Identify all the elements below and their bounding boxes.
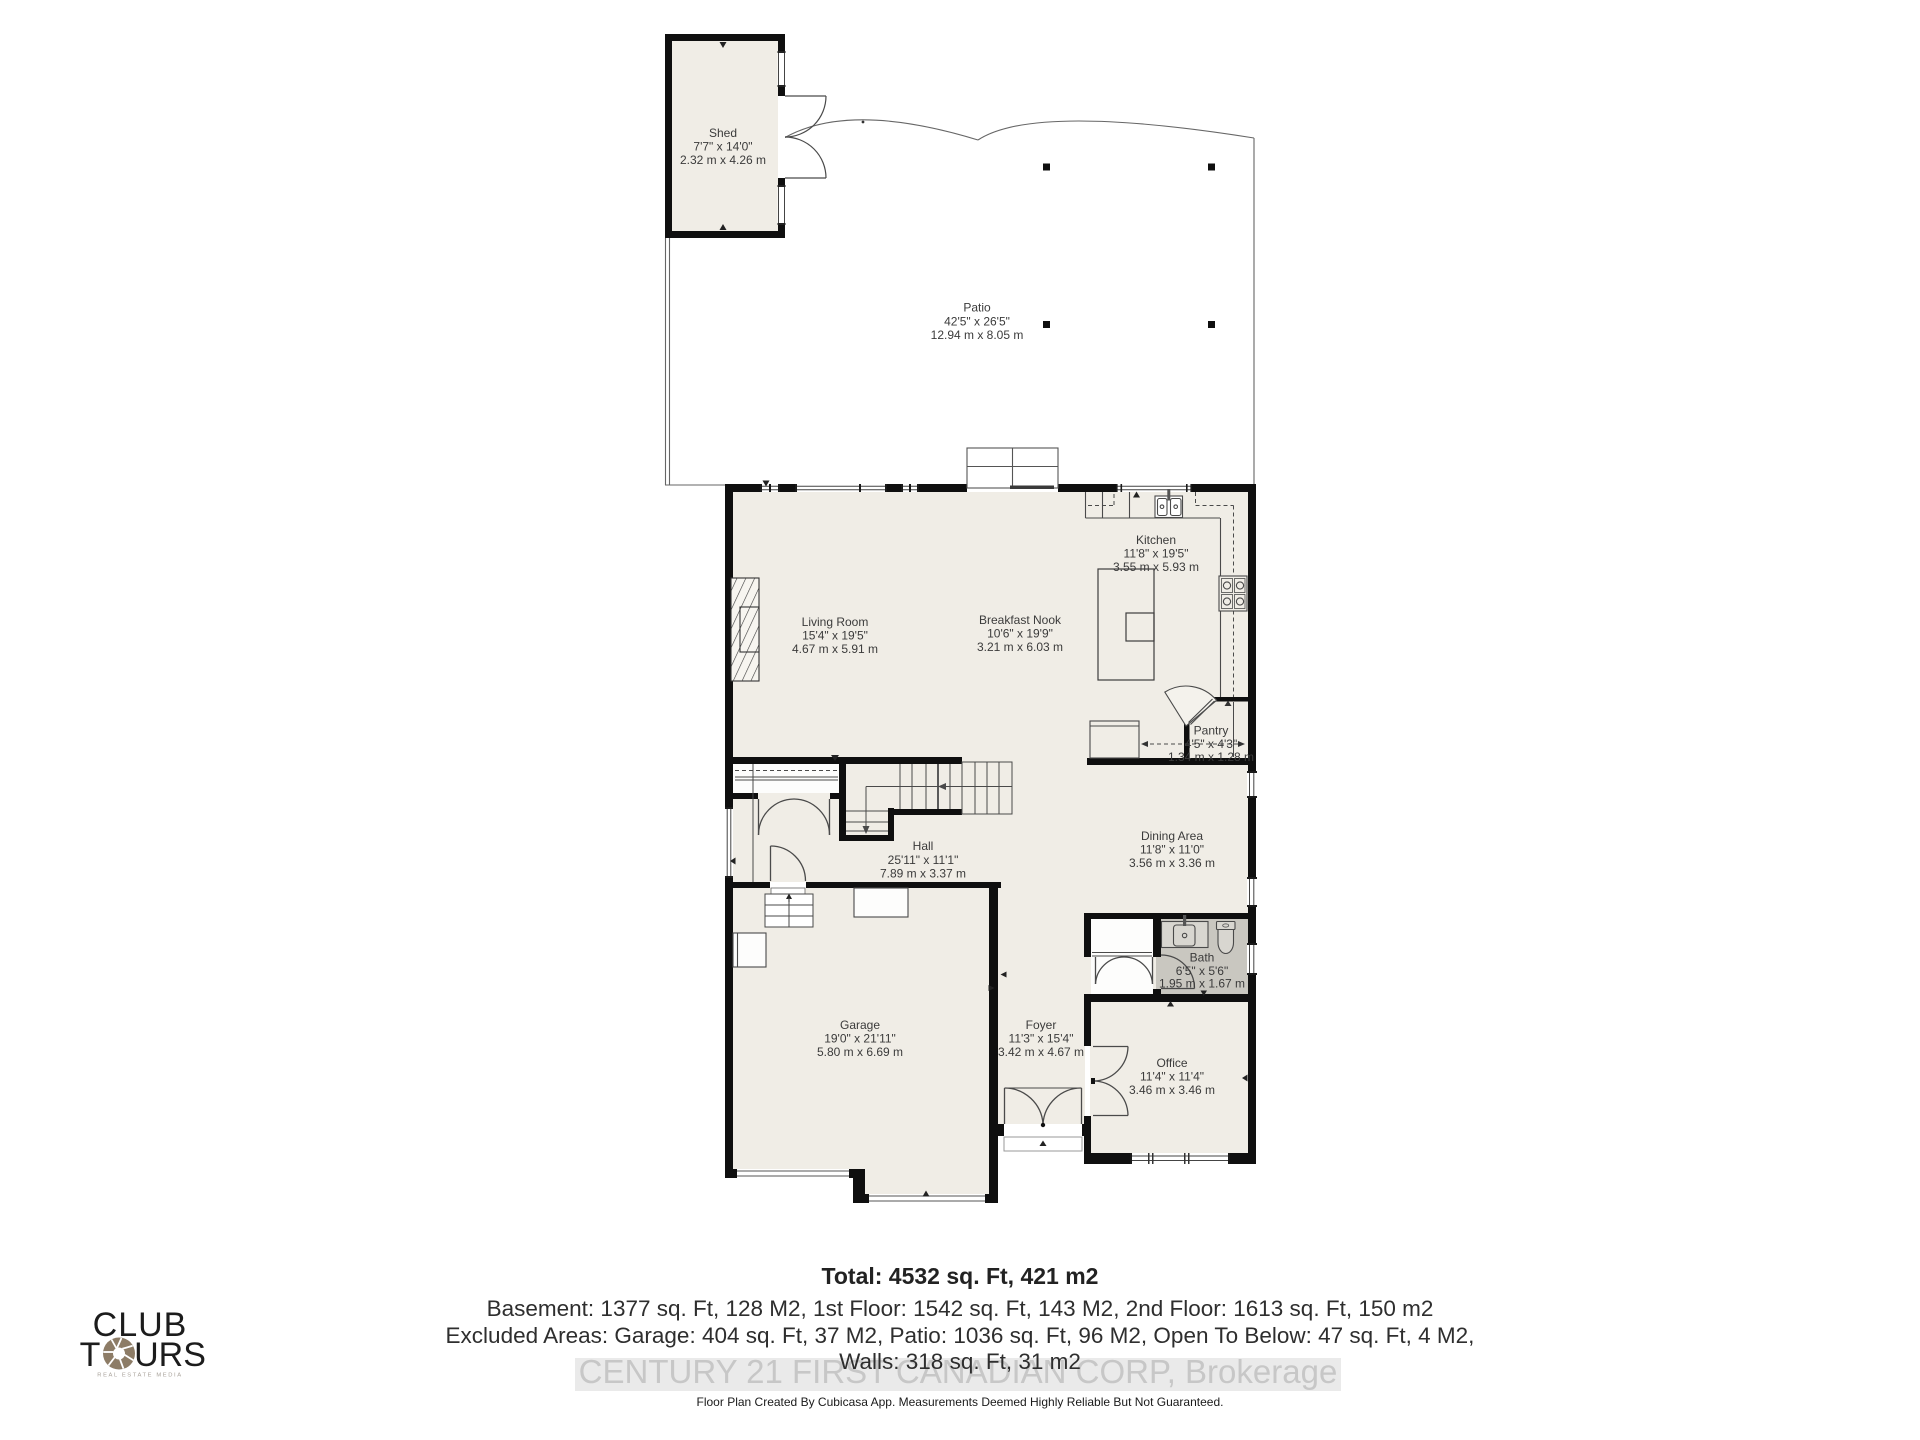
svg-text:7'7" x 14'0": 7'7" x 14'0"	[693, 140, 752, 154]
svg-text:Office: Office	[1156, 1056, 1187, 1070]
svg-text:1.34 m x 1.28 m: 1.34 m x 1.28 m	[1168, 750, 1254, 764]
svg-text:25'11" x 11'1": 25'11" x 11'1"	[888, 853, 959, 867]
svg-text:15'4" x 19'5": 15'4" x 19'5"	[802, 629, 868, 643]
svg-text:4.67 m x 5.91 m: 4.67 m x 5.91 m	[792, 642, 878, 656]
svg-text:Foyer: Foyer	[1026, 1018, 1057, 1032]
svg-text:7.89 m x 3.37 m: 7.89 m x 3.37 m	[880, 867, 966, 881]
svg-text:Total: 4532 sq. Ft, 421 m2: Total: 4532 sq. Ft, 421 m2	[822, 1263, 1099, 1289]
svg-text:Garage: Garage	[840, 1018, 880, 1032]
svg-text:42'5" x 26'5": 42'5" x 26'5"	[944, 315, 1010, 329]
svg-text:Breakfast Nook: Breakfast Nook	[979, 613, 1062, 627]
svg-text:12.94 m x 8.05 m: 12.94 m x 8.05 m	[931, 328, 1024, 342]
svg-text:5.80 m x 6.69 m: 5.80 m x 6.69 m	[817, 1045, 903, 1059]
svg-text:Bath: Bath	[1190, 951, 1215, 965]
svg-text:3.55 m x 5.93 m: 3.55 m x 5.93 m	[1113, 560, 1199, 574]
svg-text:Basement: 1377 sq. Ft, 128 M2,: Basement: 1377 sq. Ft, 128 M2, 1st Floor…	[487, 1296, 1434, 1321]
svg-text:URS: URS	[134, 1336, 206, 1374]
svg-text:3.46 m x 3.46 m: 3.46 m x 3.46 m	[1129, 1083, 1215, 1097]
svg-text:11'8" x 19'5": 11'8" x 19'5"	[1124, 547, 1189, 561]
svg-text:4'5" x 4'3": 4'5" x 4'3"	[1185, 737, 1237, 751]
svg-text:19'0" x 21'11": 19'0" x 21'11"	[824, 1032, 896, 1046]
svg-text:Floor Plan Created By Cubicasa: Floor Plan Created By Cubicasa App. Meas…	[697, 1395, 1224, 1409]
svg-text:Hall: Hall	[913, 839, 934, 853]
svg-text:Pantry: Pantry	[1194, 724, 1229, 738]
svg-text:1.95 m x 1.67 m: 1.95 m x 1.67 m	[1159, 977, 1245, 991]
svg-text:Patio: Patio	[963, 301, 991, 315]
svg-text:11'8" x 11'0": 11'8" x 11'0"	[1140, 843, 1204, 857]
svg-text:Shed: Shed	[709, 126, 737, 140]
svg-text:10'6" x 19'9": 10'6" x 19'9"	[987, 627, 1053, 641]
svg-text:Living Room: Living Room	[802, 615, 869, 629]
svg-text:Excluded Areas: Garage: 404 sq: Excluded Areas: Garage: 404 sq. Ft, 37 M…	[446, 1323, 1475, 1348]
svg-text:3.42 m x 4.67 m: 3.42 m x 4.67 m	[998, 1045, 1084, 1059]
svg-text:T: T	[80, 1336, 101, 1374]
svg-text:11'3" x 15'4": 11'3" x 15'4"	[1009, 1032, 1074, 1046]
svg-text:11'4" x 11'4": 11'4" x 11'4"	[1140, 1070, 1204, 1084]
svg-text:3.21 m x 6.03 m: 3.21 m x 6.03 m	[977, 640, 1063, 654]
svg-text:Dining Area: Dining Area	[1141, 829, 1203, 843]
svg-text:3.56 m x 3.36 m: 3.56 m x 3.36 m	[1129, 856, 1215, 870]
svg-text:REAL ESTATE MEDIA: REAL ESTATE MEDIA	[97, 1373, 182, 1379]
svg-text:Walls: 318 sq. Ft, 31 m2: Walls: 318 sq. Ft, 31 m2	[839, 1349, 1081, 1374]
svg-text:Kitchen: Kitchen	[1136, 533, 1176, 547]
svg-text:2.32 m x 4.26 m: 2.32 m x 4.26 m	[680, 153, 766, 167]
